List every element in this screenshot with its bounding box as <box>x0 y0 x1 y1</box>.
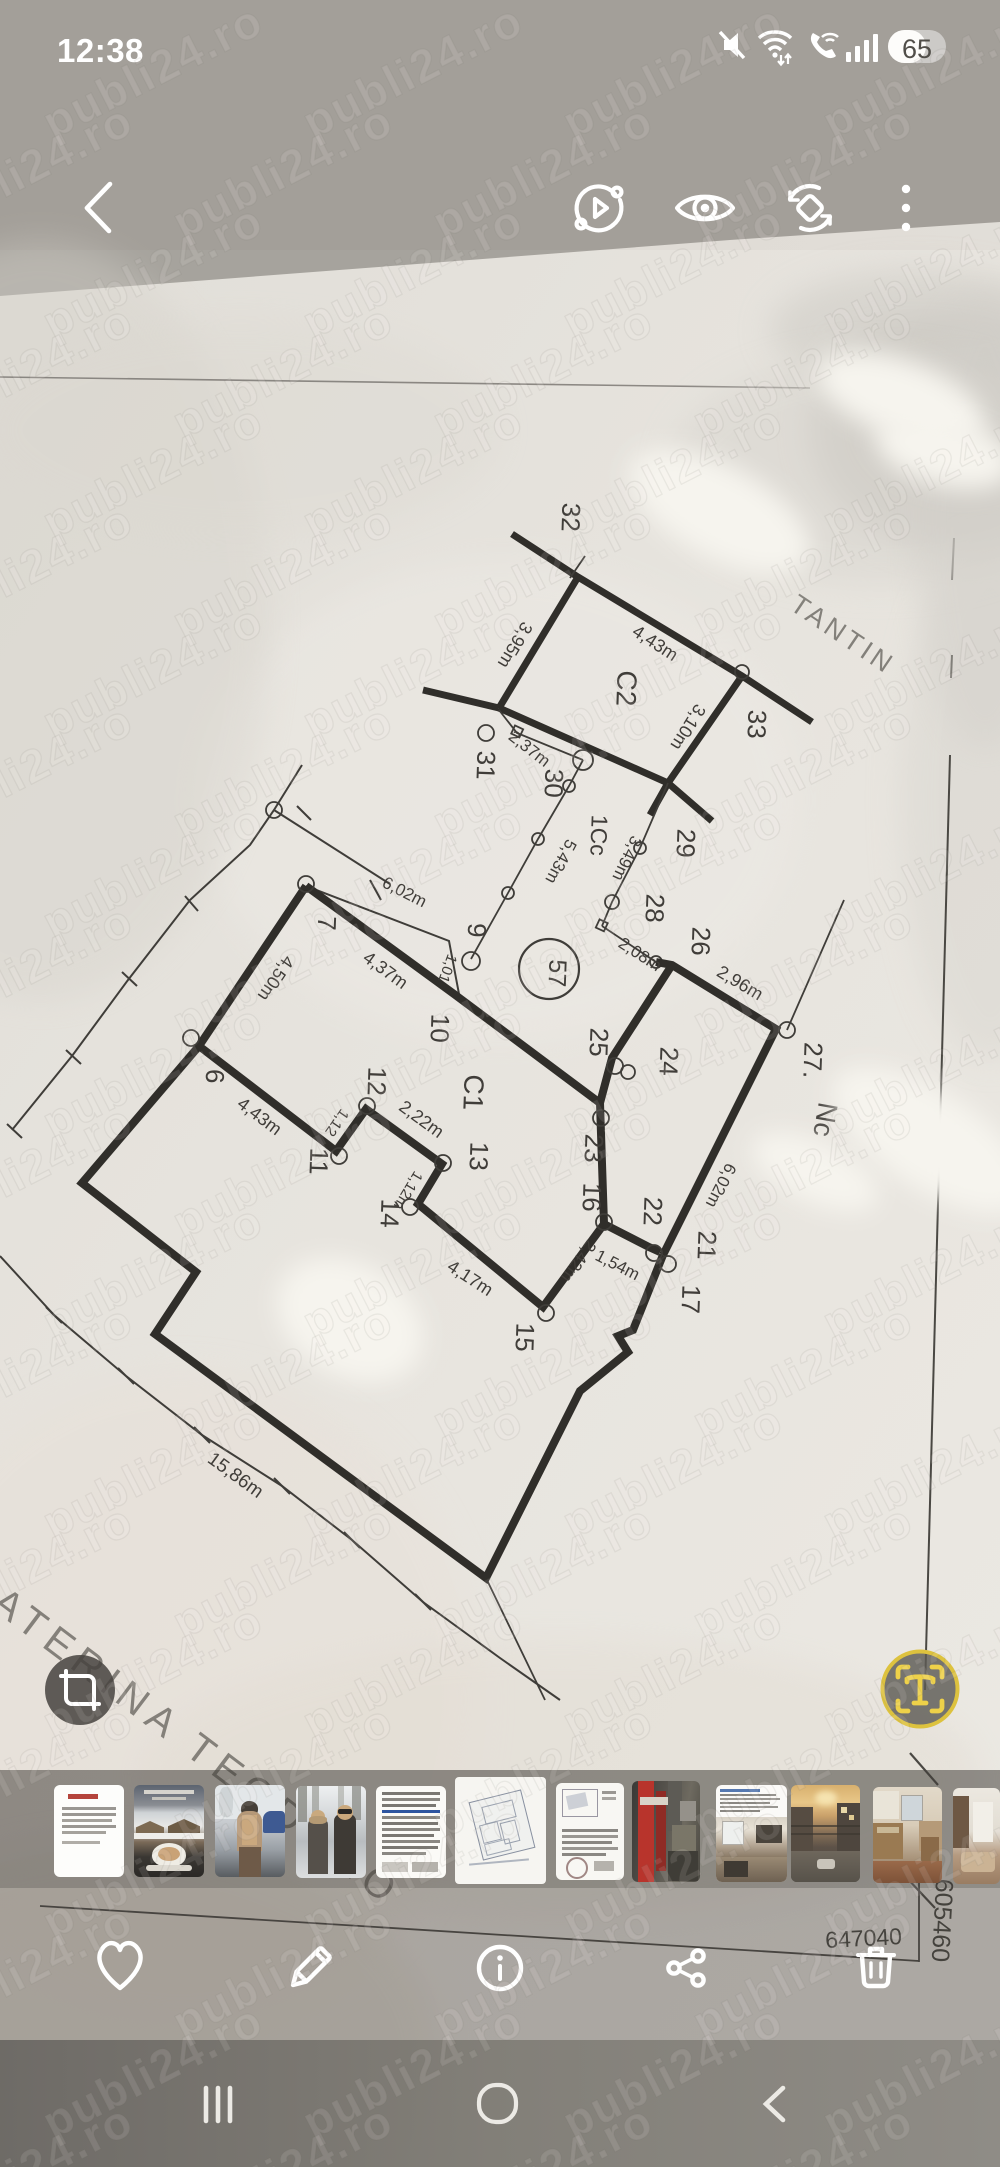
svg-text:publi24.ro: publi24.ro <box>0 93 141 248</box>
svg-text:publi24.ro: publi24.ro <box>0 1693 141 1848</box>
svg-text:publi24.ro: publi24.ro <box>164 2093 401 2167</box>
svg-text:publi24.ro: publi24.ro <box>0 293 141 448</box>
svg-text:publi24.ro: publi24.ro <box>684 2093 921 2167</box>
svg-text:publi24.ro: publi24.ro <box>0 1293 141 1448</box>
svg-text:publi24.ro: publi24.ro <box>0 1093 141 1248</box>
svg-text:publi24.ro: publi24.ro <box>0 493 141 648</box>
svg-text:publi24.ro: publi24.ro <box>0 893 141 1048</box>
svg-text:publi24.ro: publi24.ro <box>424 2093 661 2167</box>
svg-text:publi24.ro: publi24.ro <box>0 1493 141 1648</box>
svg-text:publi24.ro: publi24.ro <box>0 1893 141 2048</box>
svg-text:publi24.ro: publi24.ro <box>0 693 141 848</box>
